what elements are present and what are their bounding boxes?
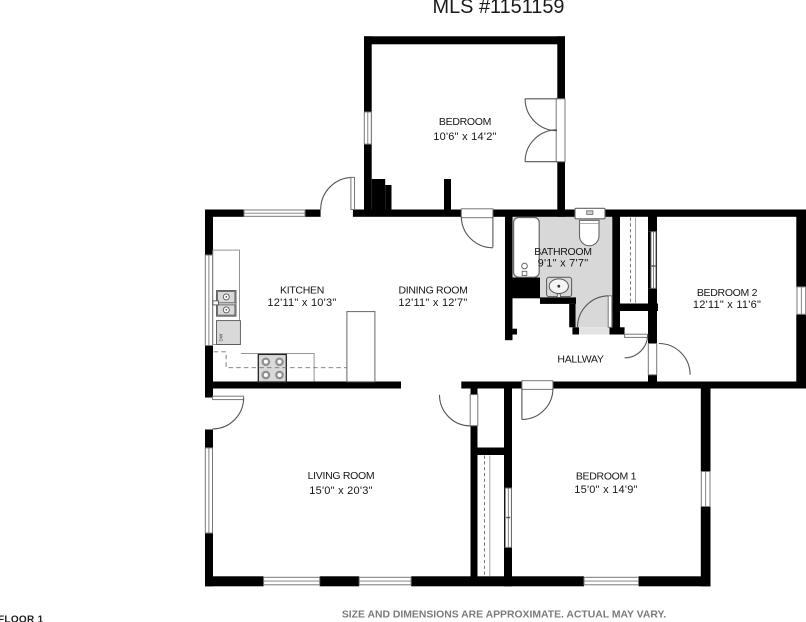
svg-text:FLOOR 1: FLOOR 1	[0, 615, 44, 622]
svg-text:LIVING ROOM: LIVING ROOM	[308, 470, 375, 482]
svg-text:HALLWAY: HALLWAY	[557, 353, 603, 365]
svg-text:12'11" x 11'6": 12'11" x 11'6"	[693, 299, 761, 311]
svg-text:KITCHEN: KITCHEN	[280, 285, 324, 297]
svg-text:MLS #1151159: MLS #1151159	[433, 0, 565, 18]
svg-text:15'0" x 14'9": 15'0" x 14'9"	[574, 484, 638, 496]
svg-text:12'11" x 10'3": 12'11" x 10'3"	[267, 297, 336, 309]
svg-text:10'6" x 14'2": 10'6" x 14'2"	[433, 131, 497, 143]
svg-text:BATHROOM: BATHROOM	[534, 246, 592, 258]
svg-text:9'1" x 7'7": 9'1" x 7'7"	[538, 258, 589, 270]
svg-text:15'0" x 20'3": 15'0" x 20'3"	[309, 485, 373, 497]
svg-text:12'11" x 12'7": 12'11" x 12'7"	[398, 297, 467, 309]
svg-text:SIZE AND DIMENSIONS ARE APPROX: SIZE AND DIMENSIONS ARE APPROXIMATE. ACT…	[342, 609, 666, 620]
svg-text:BEDROOM 1: BEDROOM 1	[576, 471, 637, 483]
svg-text:BEDROOM 2: BEDROOM 2	[697, 287, 758, 299]
svg-text:BEDROOM: BEDROOM	[439, 116, 491, 128]
svg-text:DW: DW	[219, 333, 224, 341]
svg-text:DINING ROOM: DINING ROOM	[398, 285, 467, 297]
